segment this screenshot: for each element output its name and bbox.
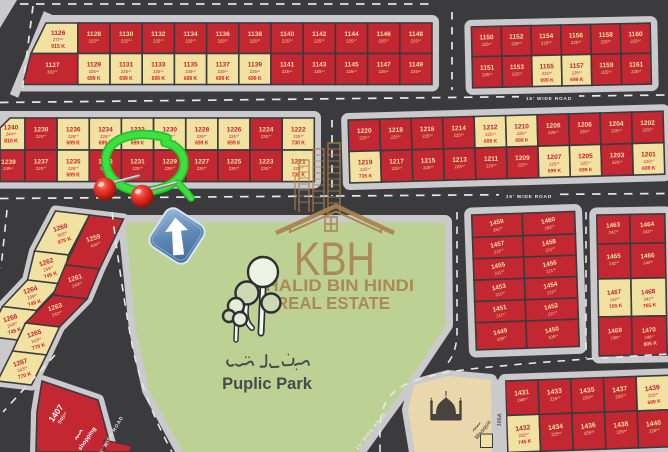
svg-text:699 K: 699 K (184, 76, 198, 82)
svg-text:699 K: 699 K (119, 76, 133, 82)
svg-text:1139: 1139 (248, 62, 263, 69)
svg-text:699 K: 699 K (67, 173, 81, 179)
svg-text:1206: 1206 (577, 121, 592, 128)
svg-text:1240: 1240 (4, 124, 19, 131)
svg-text:1148: 1148 (409, 31, 424, 38)
svg-text:1143: 1143 (312, 62, 327, 69)
svg-text:1211: 1211 (484, 156, 499, 163)
svg-text:699 K: 699 K (515, 137, 529, 143)
svg-text:1220: 1220 (357, 128, 372, 135)
svg-text:1216: 1216 (420, 126, 435, 133)
svg-text:REAL ESTATE: REAL ESTATE (276, 293, 390, 313)
svg-text:100A: 100A (497, 413, 504, 427)
svg-text:1229: 1229 (162, 158, 177, 165)
svg-text:1140: 1140 (280, 31, 295, 38)
svg-text:1209: 1209 (515, 155, 530, 162)
svg-text:1141: 1141 (280, 62, 295, 69)
svg-text:1215: 1215 (421, 157, 436, 164)
svg-text:1234: 1234 (98, 127, 113, 134)
svg-text:1239: 1239 (1, 159, 16, 166)
svg-text:1150: 1150 (479, 34, 494, 41)
svg-text:1203: 1203 (610, 152, 625, 159)
svg-text:1151: 1151 (480, 65, 495, 72)
svg-text:1227: 1227 (194, 158, 209, 165)
svg-text:1218: 1218 (388, 127, 403, 134)
svg-text:1137: 1137 (216, 62, 231, 69)
svg-text:1225: 1225 (227, 158, 242, 165)
svg-text:Puplic Park: Puplic Park (222, 375, 313, 393)
svg-text:1130: 1130 (119, 31, 134, 38)
svg-text:699 K: 699 K (484, 138, 498, 144)
svg-text:699 K: 699 K (131, 141, 145, 147)
svg-text:1149: 1149 (409, 62, 424, 69)
svg-text:1212: 1212 (483, 124, 498, 131)
svg-text:1159: 1159 (599, 62, 614, 69)
svg-text:915 K: 915 K (51, 44, 65, 50)
svg-text:15' WIDE ROAD: 15' WIDE ROAD (506, 194, 552, 200)
svg-text:1237: 1237 (34, 158, 49, 165)
svg-text:1161: 1161 (629, 61, 644, 68)
svg-text:1126: 1126 (51, 30, 66, 37)
svg-text:1204: 1204 (609, 121, 624, 128)
svg-text:699 K: 699 K (248, 76, 262, 82)
svg-text:1223: 1223 (259, 158, 274, 165)
svg-text:1219: 1219 (358, 159, 373, 166)
svg-text:1155: 1155 (540, 63, 555, 70)
svg-text:699 K: 699 K (579, 167, 593, 173)
svg-text:699 K: 699 K (152, 76, 166, 82)
svg-text:699 K: 699 K (195, 141, 209, 147)
svg-text:699 K: 699 K (87, 76, 101, 82)
svg-text:1160: 1160 (628, 31, 643, 38)
svg-text:1146: 1146 (377, 31, 392, 38)
svg-text:699 K: 699 K (227, 141, 241, 147)
svg-text:1145: 1145 (344, 62, 359, 69)
svg-text:735 K: 735 K (359, 173, 373, 179)
svg-text:1213: 1213 (452, 157, 467, 164)
svg-text:699 K: 699 K (540, 78, 554, 84)
svg-text:1157: 1157 (569, 63, 584, 70)
svg-text:699 K: 699 K (570, 77, 584, 83)
svg-text:1210: 1210 (514, 123, 529, 130)
svg-text:699 K: 699 K (216, 76, 230, 82)
svg-text:1153: 1153 (510, 64, 525, 71)
svg-text:1236: 1236 (66, 127, 81, 134)
svg-text:810 K: 810 K (4, 138, 18, 144)
svg-text:730 K: 730 K (292, 141, 306, 147)
svg-text:1129: 1129 (87, 62, 102, 69)
svg-text:1132: 1132 (151, 31, 166, 38)
svg-text:15' WIDE ROAD: 15' WIDE ROAD (526, 96, 572, 102)
svg-text:1235: 1235 (66, 158, 81, 165)
svg-text:699 K: 699 K (642, 165, 656, 171)
svg-text:1238: 1238 (34, 127, 49, 134)
svg-text:1136: 1136 (216, 31, 231, 38)
svg-text:1142: 1142 (312, 31, 327, 38)
svg-text:1226: 1226 (227, 127, 242, 134)
svg-text:1156: 1156 (569, 32, 584, 39)
svg-text:1207: 1207 (547, 154, 562, 161)
svg-text:1131: 1131 (119, 62, 134, 69)
svg-text:1135: 1135 (183, 62, 198, 69)
svg-text:699 K: 699 K (548, 168, 562, 174)
svg-text:699 K: 699 K (67, 141, 81, 147)
svg-text:1224: 1224 (259, 127, 274, 134)
svg-text:1222: 1222 (291, 127, 306, 134)
svg-text:1217: 1217 (389, 158, 404, 165)
svg-text:1152: 1152 (509, 34, 524, 41)
svg-text:1205: 1205 (578, 153, 593, 160)
svg-text:1202: 1202 (640, 120, 655, 127)
svg-text:1127: 1127 (45, 62, 60, 69)
svg-text:1134: 1134 (183, 31, 198, 38)
svg-text:1144: 1144 (344, 31, 359, 38)
svg-text:1228: 1228 (194, 127, 209, 134)
svg-text:1128: 1128 (87, 31, 102, 38)
svg-text:1208: 1208 (546, 122, 561, 129)
svg-text:1147: 1147 (377, 62, 392, 69)
svg-text:1201: 1201 (641, 151, 656, 158)
svg-text:1138: 1138 (248, 31, 263, 38)
svg-text:1133: 1133 (151, 62, 166, 69)
svg-text:1154: 1154 (539, 33, 554, 40)
svg-text:1158: 1158 (598, 32, 613, 39)
svg-text:1214: 1214 (451, 125, 466, 132)
svg-text:1231: 1231 (130, 158, 145, 165)
